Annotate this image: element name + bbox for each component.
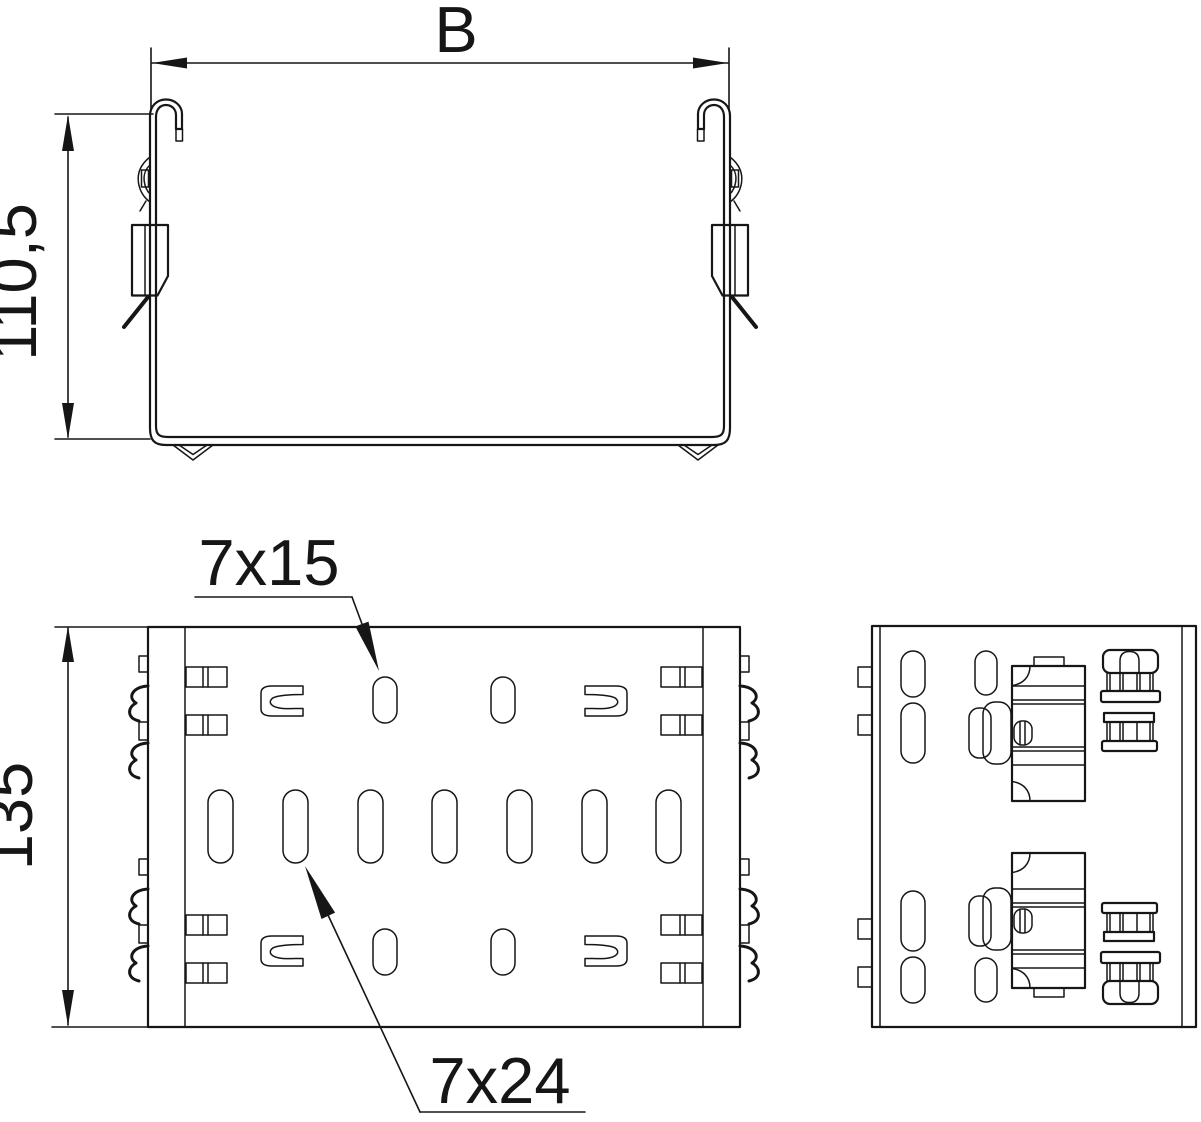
callout-small-slot-leader [352, 597, 362, 624]
connector-knob-lower [969, 888, 1011, 950]
slot-7x24 [656, 790, 681, 863]
side-slot [901, 891, 925, 951]
connector-knob-upper [969, 702, 1011, 764]
slot-7x24 [208, 790, 233, 863]
fork-cutout-bottom-right [585, 936, 627, 966]
edge-clip-bottom-left [130, 859, 148, 981]
tray-floor-inner [156, 426, 724, 437]
slot-7x15 [491, 677, 515, 723]
tray-right-wall [698, 100, 757, 429]
latch-top-right [661, 667, 702, 735]
knob-inner [969, 708, 991, 758]
quick-connector-upper [1012, 657, 1085, 801]
dimension-length-extension-lines [52, 627, 148, 1027]
callout-large-slot: 7x24 [305, 866, 585, 1117]
tray-cross-section [124, 100, 756, 461]
side-slot [901, 957, 925, 1003]
slot-7x24 [507, 790, 532, 863]
side-brackets-lower [1101, 903, 1160, 1004]
dimension-width-arrow-left [152, 58, 187, 69]
fork-cutout-top-right [585, 686, 627, 716]
side-tab [858, 667, 872, 687]
plan-view: 135 [0, 526, 758, 1117]
callout-small-slot: 7x15 [195, 526, 379, 671]
tray-left-wall [124, 100, 183, 429]
slot-7x15 [491, 929, 515, 975]
callout-large-slot-label: 7x24 [430, 1044, 571, 1117]
dimension-width-label: B [434, 0, 477, 66]
latch-bottom-left [186, 915, 227, 983]
side-brackets-upper [1101, 650, 1160, 751]
edge-clip-top-left [130, 656, 148, 778]
slot-7x24 [358, 790, 383, 863]
dimension-height: 110,5 [0, 114, 153, 439]
slot-7x24 [283, 790, 308, 863]
flange-fold-lines [185, 627, 703, 1027]
tray-plan-outline [148, 627, 740, 1027]
edge-clip-bottom-right [740, 859, 758, 981]
side-tab [858, 919, 872, 939]
knob-outer [983, 702, 1011, 764]
side-view [858, 626, 1196, 1027]
slot-7x24 [582, 790, 607, 863]
side-tab [858, 715, 872, 735]
callout-small-slot-label: 7x15 [199, 526, 340, 599]
side-slot [901, 651, 925, 697]
knob-inner [969, 896, 991, 946]
quick-connector-lower [1012, 853, 1085, 997]
callout-large-slot-arrowhead [305, 866, 335, 919]
side-left-tabs [858, 667, 872, 987]
dimension-height-label: 110,5 [0, 203, 50, 361]
dimension-height-arrow-bottom [62, 403, 74, 439]
latch-top-left [186, 667, 227, 735]
slot-7x15 [373, 677, 397, 723]
dimension-width: B [151, 0, 729, 110]
side-slot [975, 651, 997, 695]
dimension-height-arrow-top [62, 115, 74, 151]
callout-small-slot-arrowhead [355, 622, 379, 671]
side-tab [858, 967, 872, 987]
cross-section-view: B 110,5 [0, 0, 756, 460]
dimension-length-arrow-top [62, 626, 74, 662]
fork-cutout-bottom-left [261, 936, 303, 966]
dimension-length-arrow-bottom [62, 990, 74, 1026]
side-slots [901, 651, 997, 1003]
slot-7x24 [432, 790, 457, 863]
edge-clip-top-right [740, 656, 758, 778]
slot-7x15 [373, 929, 397, 975]
tray-foot-right [678, 445, 718, 460]
dimension-length-label: 135 [0, 762, 46, 870]
technical-drawing-page: B 110,5 135 [0, 0, 1201, 1117]
side-slot [901, 703, 925, 763]
latch-bottom-right [661, 915, 702, 983]
dimension-length: 135 [0, 626, 148, 1027]
technical-drawing: B 110,5 135 [0, 0, 1201, 1117]
large-slots-7x24 [208, 790, 681, 863]
small-slots-7x15 [373, 677, 515, 975]
side-slot [975, 958, 997, 1002]
dimension-height-extension-lines [55, 114, 153, 439]
dimension-width-arrow-right [693, 58, 728, 69]
fork-cutout-top-left [261, 686, 303, 716]
tray-foot-left [173, 445, 213, 460]
callout-large-slot-leader [328, 915, 420, 1112]
